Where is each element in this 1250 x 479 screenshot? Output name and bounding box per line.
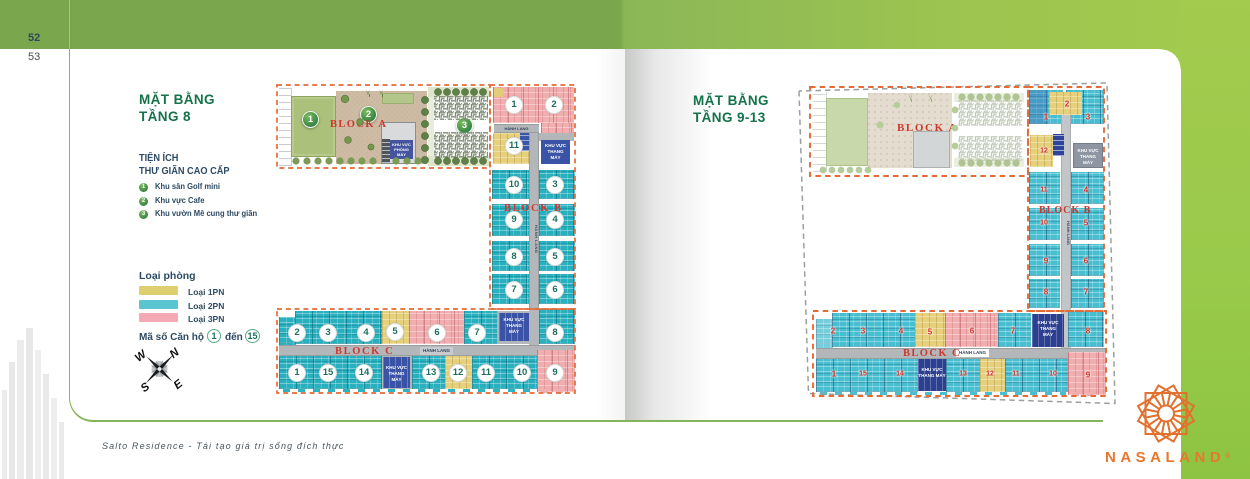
svg-text:E: E [172, 378, 186, 392]
svg-text:S: S [139, 381, 153, 395]
svg-text:W: W [133, 348, 150, 365]
